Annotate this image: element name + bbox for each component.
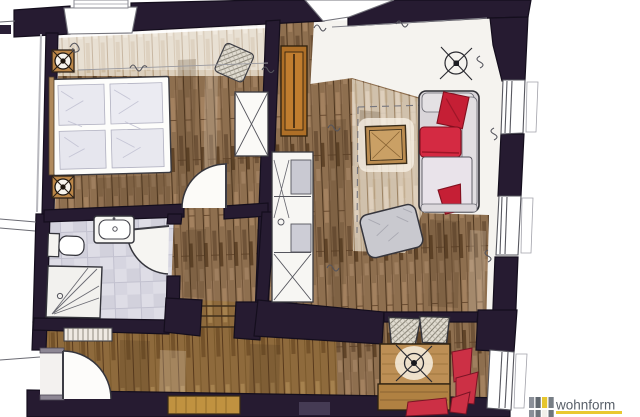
svg-text:wohnform: wohnform <box>555 398 615 413</box>
